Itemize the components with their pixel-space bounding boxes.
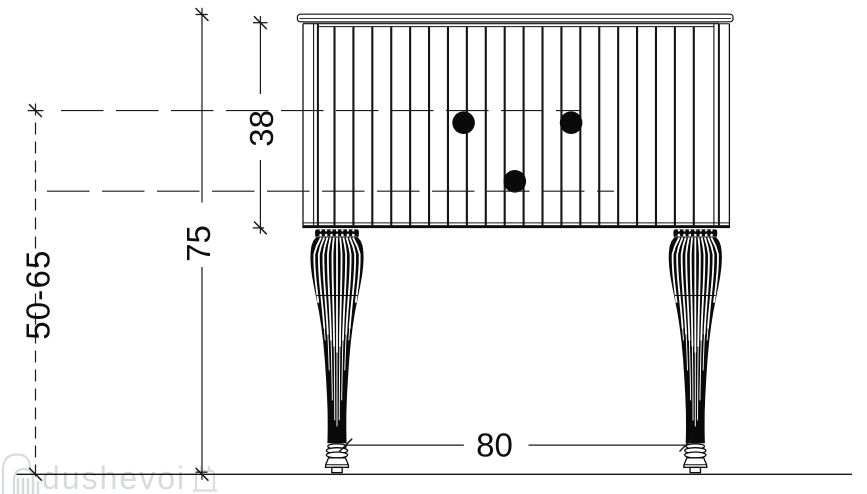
svg-text:80: 80: [476, 426, 513, 463]
svg-text:75: 75: [180, 225, 217, 262]
svg-text:dushevoi: dushevoi: [42, 460, 186, 494]
svg-text:50-65: 50-65: [20, 249, 57, 339]
svg-text:38: 38: [243, 110, 280, 147]
